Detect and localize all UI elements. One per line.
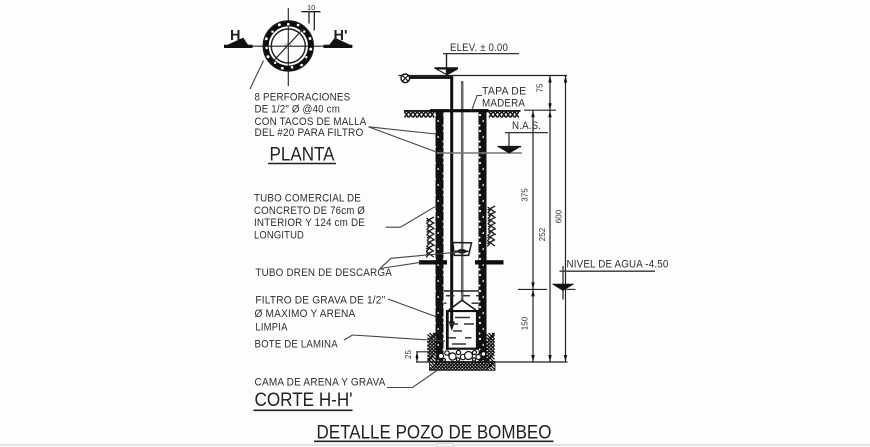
- svg-text:DEL #20 PARA FILTRO: DEL #20 PARA FILTRO: [255, 127, 364, 139]
- svg-text:75: 75: [536, 83, 545, 92]
- svg-text:BOTE DE LAMINA: BOTE DE LAMINA: [255, 339, 339, 351]
- svg-text:FILTRO DE GRAVA DE 1/2": FILTRO DE GRAVA DE 1/2": [255, 295, 385, 307]
- svg-text:H: H: [230, 28, 240, 44]
- svg-text:H': H': [334, 28, 348, 44]
- svg-text:LONGITUD: LONGITUD: [254, 230, 304, 242]
- svg-text:10: 10: [307, 3, 315, 12]
- svg-text:375: 375: [521, 188, 530, 202]
- svg-text:8 PERFORACIONES: 8 PERFORACIONES: [255, 91, 351, 103]
- svg-text:150: 150: [521, 316, 530, 330]
- svg-text:DETALLE POZO DE BOMBEO: DETALLE POZO DE BOMBEO: [317, 421, 552, 443]
- svg-text:PLANTA: PLANTA: [270, 144, 335, 166]
- svg-text:CAMA DE ARENA Y GRAVA: CAMA DE ARENA Y GRAVA: [255, 377, 386, 389]
- svg-text:Ø MAXIMO Y ARENA: Ø MAXIMO Y ARENA: [255, 308, 356, 320]
- svg-text:N.A.S.: N.A.S.: [512, 120, 541, 132]
- svg-text:CON TACOS DE MALLA: CON TACOS DE MALLA: [255, 116, 367, 128]
- svg-text:TAPA DE: TAPA DE: [482, 85, 526, 97]
- svg-text:LIMPIA: LIMPIA: [255, 322, 288, 334]
- svg-text:TUBO DREN DE DESCARGA: TUBO DREN DE DESCARGA: [255, 267, 392, 279]
- svg-text:NIVEL DE AGUA -4.50: NIVEL DE AGUA -4.50: [567, 258, 669, 270]
- svg-text:CONCRETO DE 76cm Ø: CONCRETO DE 76cm Ø: [254, 205, 365, 217]
- svg-text:252: 252: [538, 227, 547, 241]
- svg-text:25: 25: [404, 350, 413, 359]
- svg-text:CORTE H-H': CORTE H-H': [255, 389, 353, 411]
- svg-text:600: 600: [555, 209, 564, 223]
- svg-text:TUBO COMERCIAL DE: TUBO COMERCIAL DE: [254, 193, 361, 205]
- svg-text:INTERIOR Y 124 cm DE: INTERIOR Y 124 cm DE: [254, 217, 365, 229]
- svg-text:MADERA: MADERA: [482, 98, 526, 110]
- svg-text:ELEV. ± 0.00: ELEV. ± 0.00: [450, 42, 508, 54]
- svg-text:DE 1/2" Ø @40 cm: DE 1/2" Ø @40 cm: [255, 104, 341, 116]
